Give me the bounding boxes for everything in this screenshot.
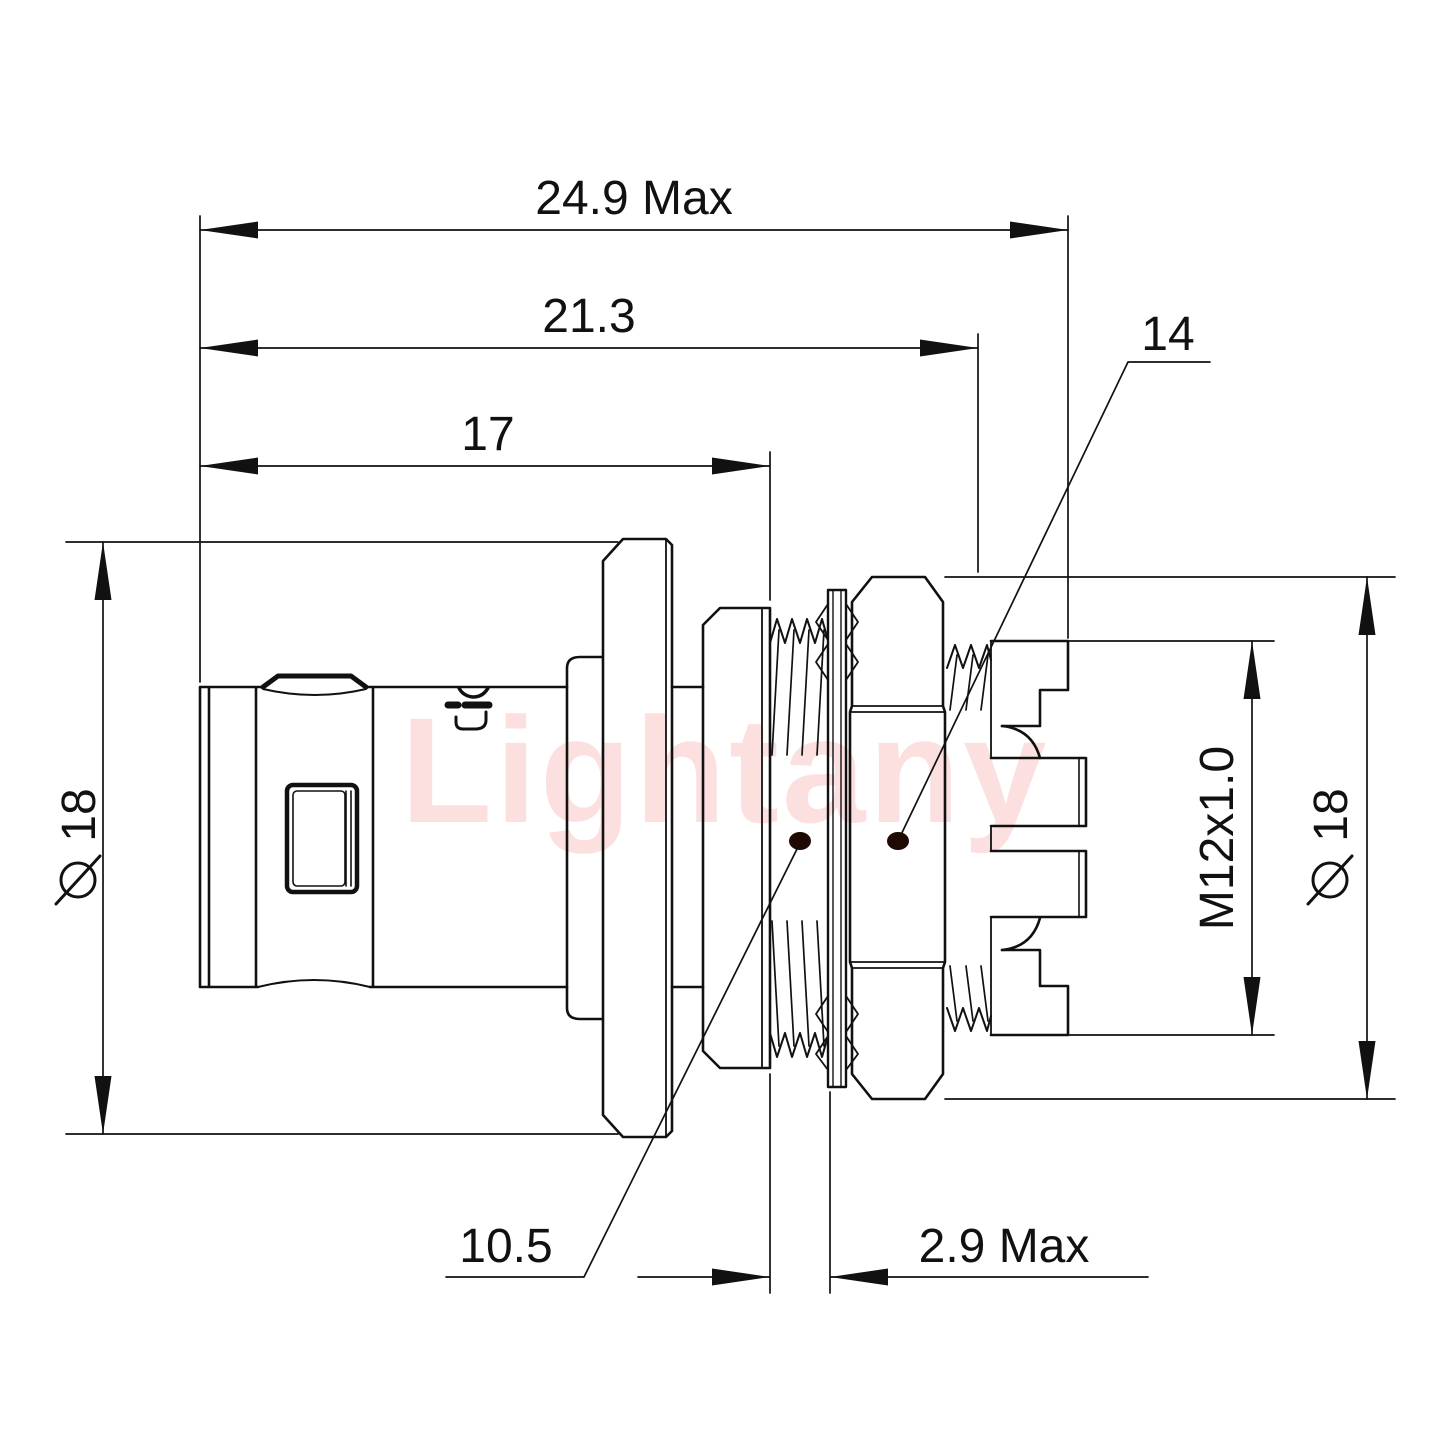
dim-front-length-label: 17 <box>461 408 514 461</box>
leader-14-label: 14 <box>1141 308 1194 361</box>
lower-contact-pin <box>991 851 1086 917</box>
leader-105-line <box>446 843 800 1277</box>
technical-drawing-sheet: Lightany <box>0 0 1440 1440</box>
diameter-symbol-right-icon <box>1308 856 1352 904</box>
watermark-text: Lightany <box>401 686 1050 854</box>
dim-thread-label: M12x1.0 <box>1191 746 1244 930</box>
dim-overall-length-label: 24.9 Max <box>535 172 732 225</box>
leader-dot-shank <box>789 832 811 850</box>
anti-rotation-key <box>263 676 366 687</box>
leader-105-label: 10.5 <box>459 1220 552 1273</box>
dim-plug-diameter-value: 18 <box>53 788 106 841</box>
dim-length-to-panel-label: 21.3 <box>542 290 635 343</box>
latch-window-cutout <box>287 785 357 892</box>
dim-panel-thickness-label: 2.9 Max <box>919 1220 1090 1273</box>
connector-dimension-drawing: Lightany <box>0 0 1440 1440</box>
dim-rear-diameter-value: 18 <box>1305 788 1358 841</box>
diameter-symbol-left-icon <box>56 856 100 904</box>
leader-dot-nut <box>887 832 909 850</box>
